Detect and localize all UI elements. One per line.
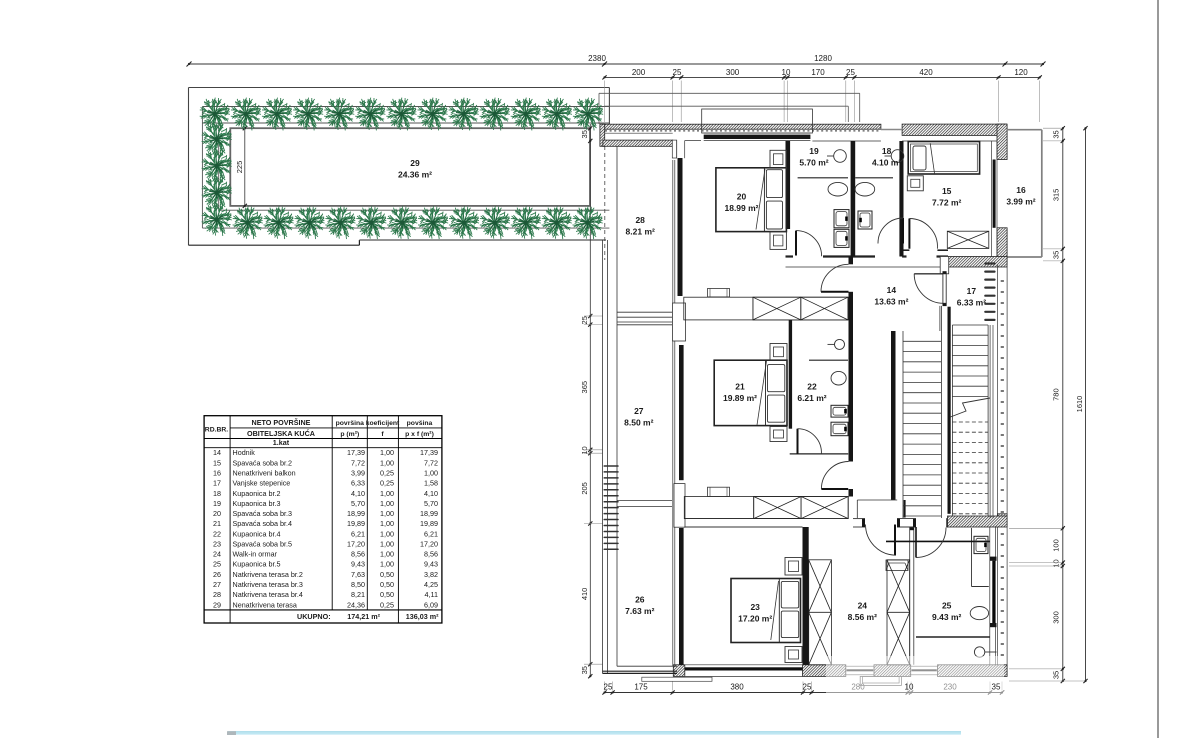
- svg-text:22: 22: [213, 529, 221, 538]
- svg-text:5,70: 5,70: [424, 499, 438, 508]
- svg-text:7,72: 7,72: [351, 458, 365, 467]
- svg-text:17: 17: [213, 479, 221, 488]
- svg-text:17,39: 17,39: [420, 448, 438, 457]
- svg-text:Nenatkriveni balkon: Nenatkriveni balkon: [233, 469, 296, 478]
- svg-text:7,72: 7,72: [424, 458, 438, 467]
- svg-text:17,39: 17,39: [347, 448, 365, 457]
- svg-text:5.70 m²: 5.70 m²: [799, 158, 828, 168]
- svg-text:17,20: 17,20: [347, 540, 365, 549]
- svg-text:35: 35: [580, 130, 589, 138]
- svg-text:Spavaća soba br.4: Spavaća soba br.4: [233, 519, 293, 528]
- svg-text:27: 27: [634, 406, 644, 416]
- svg-text:0,25: 0,25: [380, 479, 394, 488]
- svg-text:420: 420: [919, 68, 933, 77]
- svg-text:1,00: 1,00: [380, 540, 394, 549]
- svg-text:25: 25: [803, 682, 812, 691]
- svg-text:3,82: 3,82: [424, 570, 438, 579]
- svg-text:29: 29: [410, 158, 420, 168]
- svg-text:Nenatkrivena terasa: Nenatkrivena terasa: [233, 600, 297, 609]
- svg-text:175: 175: [634, 682, 648, 691]
- svg-text:18: 18: [882, 146, 892, 156]
- svg-text:0,50: 0,50: [380, 580, 394, 589]
- svg-text:Spavaća soba br.2: Spavaća soba br.2: [233, 458, 293, 467]
- svg-text:6,21: 6,21: [424, 529, 438, 538]
- svg-text:1,00: 1,00: [380, 499, 394, 508]
- svg-text:35: 35: [580, 666, 589, 674]
- svg-text:8.50 m²: 8.50 m²: [624, 418, 653, 428]
- svg-text:15: 15: [942, 186, 952, 196]
- svg-text:6,33: 6,33: [351, 479, 365, 488]
- svg-text:povšina: povšina: [407, 420, 433, 427]
- svg-text:p x f (m²): p x f (m²): [405, 431, 434, 438]
- svg-text:28: 28: [213, 590, 221, 599]
- svg-text:1,58: 1,58: [424, 479, 438, 488]
- svg-text:25: 25: [213, 560, 221, 569]
- svg-text:20: 20: [213, 509, 221, 518]
- svg-text:315: 315: [1052, 189, 1061, 202]
- svg-text:18,99: 18,99: [420, 509, 438, 518]
- svg-text:10: 10: [782, 68, 791, 77]
- svg-text:1610: 1610: [1075, 396, 1084, 413]
- svg-text:4,25: 4,25: [424, 580, 438, 589]
- svg-text:19: 19: [809, 146, 819, 156]
- svg-text:0,25: 0,25: [380, 469, 394, 478]
- svg-text:23: 23: [213, 540, 221, 549]
- svg-text:24.36 m²: 24.36 m²: [398, 170, 432, 180]
- svg-text:6,09: 6,09: [424, 600, 438, 609]
- svg-text:1280: 1280: [814, 54, 832, 63]
- svg-text:21: 21: [735, 382, 745, 392]
- svg-text:NETO POVRŠINE: NETO POVRŠINE: [252, 418, 311, 427]
- svg-text:13.63 m²: 13.63 m²: [874, 297, 908, 307]
- svg-text:1,00: 1,00: [380, 560, 394, 569]
- svg-text:1,00: 1,00: [380, 458, 394, 467]
- svg-text:136,03 m²: 136,03 m²: [406, 612, 439, 621]
- svg-text:17.20 m²: 17.20 m²: [738, 613, 772, 623]
- svg-text:5,70: 5,70: [351, 499, 365, 508]
- svg-text:7,63: 7,63: [351, 570, 365, 579]
- svg-text:10: 10: [905, 682, 914, 691]
- svg-text:4,10: 4,10: [351, 489, 365, 498]
- svg-text:0,50: 0,50: [380, 570, 394, 579]
- svg-text:6.33 m²: 6.33 m²: [957, 298, 986, 308]
- svg-text:24: 24: [858, 601, 868, 611]
- svg-text:24,36: 24,36: [347, 600, 365, 609]
- svg-text:6.21 m²: 6.21 m²: [797, 393, 826, 403]
- svg-text:17,20: 17,20: [420, 540, 438, 549]
- svg-text:29: 29: [213, 600, 221, 609]
- svg-text:Natkrivena terasa br.2: Natkrivena terasa br.2: [233, 570, 303, 579]
- svg-text:9,43: 9,43: [351, 560, 365, 569]
- svg-text:1,00: 1,00: [380, 519, 394, 528]
- svg-text:780: 780: [1052, 388, 1061, 401]
- svg-text:koeficijent: koeficijent: [366, 420, 400, 427]
- svg-text:7.63 m²: 7.63 m²: [625, 606, 654, 616]
- svg-text:300: 300: [726, 68, 740, 77]
- svg-text:16: 16: [213, 469, 221, 478]
- svg-text:200: 200: [632, 68, 646, 77]
- svg-text:1,00: 1,00: [380, 509, 394, 518]
- svg-text:22: 22: [807, 382, 817, 392]
- svg-text:3.99 m²: 3.99 m²: [1006, 197, 1035, 207]
- svg-text:Spavaća soba br.3: Spavaća soba br.3: [233, 509, 293, 518]
- svg-text:120: 120: [1014, 68, 1028, 77]
- svg-text:28: 28: [635, 215, 645, 225]
- svg-text:8.21 m²: 8.21 m²: [626, 226, 655, 236]
- svg-text:19.89 m²: 19.89 m²: [723, 393, 757, 403]
- svg-text:18,99: 18,99: [347, 509, 365, 518]
- svg-text:26: 26: [635, 595, 645, 605]
- svg-text:300: 300: [1052, 611, 1061, 624]
- svg-text:205: 205: [580, 482, 589, 495]
- svg-text:p (m²): p (m²): [340, 431, 359, 438]
- svg-text:19,89: 19,89: [347, 519, 365, 528]
- svg-text:9,43: 9,43: [424, 560, 438, 569]
- svg-text:površina: površina: [336, 420, 365, 427]
- svg-text:8,56: 8,56: [424, 550, 438, 559]
- svg-text:170: 170: [811, 68, 825, 77]
- svg-text:14: 14: [887, 285, 897, 295]
- svg-text:15: 15: [213, 458, 221, 467]
- svg-text:Natkrivena terasa br.4: Natkrivena terasa br.4: [233, 590, 303, 599]
- svg-text:4,10: 4,10: [424, 489, 438, 498]
- svg-text:9.43 m²: 9.43 m²: [932, 612, 961, 622]
- svg-text:35: 35: [1052, 671, 1061, 679]
- svg-text:2380: 2380: [588, 54, 606, 63]
- svg-text:16: 16: [1016, 185, 1026, 195]
- svg-text:6,21: 6,21: [351, 529, 365, 538]
- svg-text:Walk-in ormar: Walk-in ormar: [233, 550, 278, 559]
- svg-text:3,99: 3,99: [351, 469, 365, 478]
- svg-text:Spavaća soba br.5: Spavaća soba br.5: [233, 540, 293, 549]
- svg-text:14: 14: [213, 448, 221, 457]
- svg-text:18: 18: [213, 489, 221, 498]
- svg-text:RD.BR.: RD.BR.: [205, 427, 229, 434]
- svg-text:UKUPNO:: UKUPNO:: [297, 612, 331, 621]
- svg-text:1,00: 1,00: [380, 448, 394, 457]
- svg-text:18.99 m²: 18.99 m²: [724, 203, 758, 213]
- svg-text:7.72 m²: 7.72 m²: [932, 198, 961, 208]
- svg-text:225: 225: [235, 161, 244, 174]
- svg-text:35: 35: [992, 682, 1001, 691]
- svg-text:1,00: 1,00: [380, 489, 394, 498]
- svg-text:365: 365: [580, 381, 589, 394]
- svg-text:24: 24: [213, 550, 221, 559]
- svg-text:4.10 m²: 4.10 m²: [872, 158, 901, 168]
- svg-text:100: 100: [1052, 539, 1061, 552]
- svg-text:Vanjske stepenice: Vanjske stepenice: [233, 479, 291, 488]
- svg-text:25: 25: [942, 601, 952, 611]
- svg-text:19: 19: [213, 499, 221, 508]
- svg-text:8.56 m²: 8.56 m²: [848, 612, 877, 622]
- svg-text:20: 20: [737, 192, 747, 202]
- svg-text:410: 410: [580, 588, 589, 601]
- svg-text:OBITELJSKA KUĆA: OBITELJSKA KUĆA: [247, 429, 315, 438]
- svg-text:Natkrivena terasa br.3: Natkrivena terasa br.3: [233, 580, 303, 589]
- svg-text:26: 26: [213, 570, 221, 579]
- svg-text:10: 10: [1052, 559, 1061, 567]
- svg-text:25: 25: [580, 316, 589, 324]
- svg-text:21: 21: [213, 519, 221, 528]
- svg-text:4,11: 4,11: [425, 590, 438, 599]
- svg-text:19,89: 19,89: [420, 519, 438, 528]
- svg-text:174,21 m²: 174,21 m²: [347, 612, 380, 621]
- svg-text:1.kat: 1.kat: [273, 438, 290, 447]
- svg-text:1,00: 1,00: [380, 550, 394, 559]
- svg-text:Kupaonica br.3: Kupaonica br.3: [233, 499, 281, 508]
- svg-text:Kupaonica br.2: Kupaonica br.2: [233, 489, 281, 498]
- svg-text:Kupaonica br.4: Kupaonica br.4: [233, 529, 281, 538]
- svg-text:25: 25: [673, 68, 682, 77]
- svg-text:380: 380: [730, 682, 744, 691]
- svg-text:8,50: 8,50: [351, 580, 365, 589]
- svg-text:0,50: 0,50: [380, 590, 394, 599]
- svg-text:25: 25: [604, 682, 613, 691]
- svg-text:35: 35: [1052, 251, 1061, 259]
- svg-text:0,25: 0,25: [380, 600, 394, 609]
- svg-text:17: 17: [967, 286, 977, 296]
- svg-text:23: 23: [750, 602, 760, 612]
- svg-text:1,00: 1,00: [380, 529, 394, 538]
- svg-text:8,21: 8,21: [351, 590, 365, 599]
- svg-text:Kupaonica br.5: Kupaonica br.5: [233, 560, 281, 569]
- svg-text:35: 35: [1052, 130, 1061, 138]
- svg-text:25: 25: [846, 68, 855, 77]
- svg-text:27: 27: [213, 580, 221, 589]
- svg-text:8,56: 8,56: [351, 550, 365, 559]
- svg-text:1,00: 1,00: [424, 469, 438, 478]
- svg-text:Hodnik: Hodnik: [233, 448, 256, 457]
